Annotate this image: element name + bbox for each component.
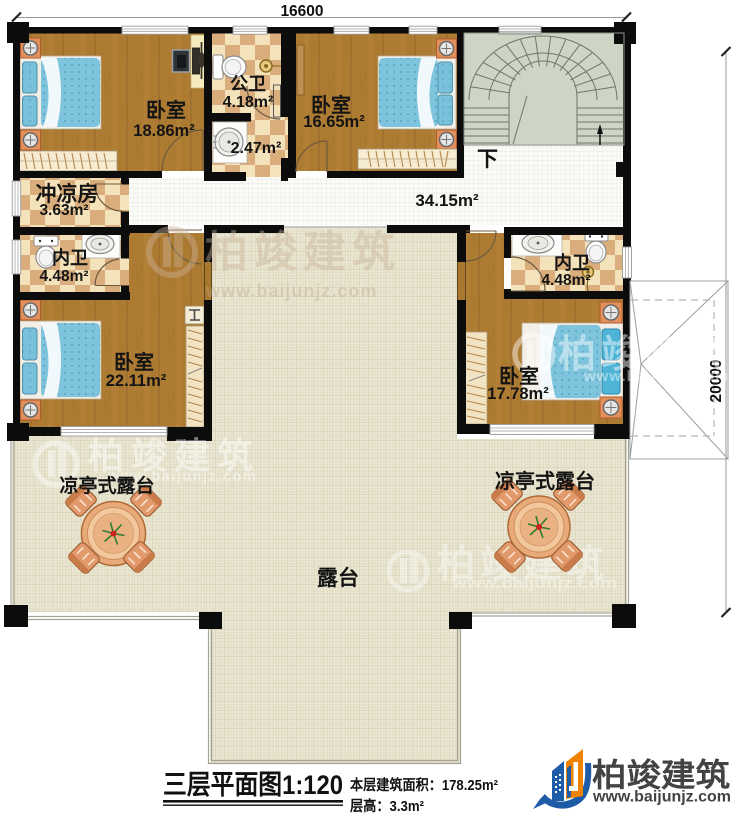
svg-text:34.15m²: 34.15m² <box>415 191 479 210</box>
svg-text:16600: 16600 <box>280 3 323 20</box>
svg-text:内卫: 内卫 <box>554 252 590 273</box>
svg-text:16.65m²: 16.65m² <box>303 113 365 131</box>
svg-text:本层建筑面积：178.25m²: 本层建筑面积：178.25m² <box>350 776 498 794</box>
svg-text:2.47m²: 2.47m² <box>231 140 282 157</box>
svg-text:卧室: 卧室 <box>114 350 154 374</box>
svg-text:凉亭式露台: 凉亭式露台 <box>59 474 154 497</box>
svg-text:17.78m²: 17.78m² <box>487 385 549 403</box>
svg-text:www.baijunjz.com: www.baijunjz.com <box>583 368 729 385</box>
svg-text:18.86m²: 18.86m² <box>133 122 195 140</box>
svg-text:22.11m²: 22.11m² <box>106 372 167 390</box>
svg-text:三层平面图1:120: 三层平面图1:120 <box>163 770 343 800</box>
svg-text:4.48m²: 4.48m² <box>541 272 590 289</box>
svg-text:卧室: 卧室 <box>146 98 186 122</box>
svg-text:www.baijunjz.com: www.baijunjz.com <box>205 281 377 301</box>
svg-text:内卫: 内卫 <box>52 247 88 268</box>
svg-text:凉亭式露台: 凉亭式露台 <box>495 469 595 493</box>
svg-text:3.63m²: 3.63m² <box>39 202 88 219</box>
svg-text:下: 下 <box>477 148 498 171</box>
svg-text:4.48m²: 4.48m² <box>39 268 88 285</box>
svg-text:公卫: 公卫 <box>230 74 266 94</box>
svg-text:www.baijunjz.com: www.baijunjz.com <box>451 575 617 592</box>
svg-text:4.18m²: 4.18m² <box>223 94 274 111</box>
svg-text:露台: 露台 <box>317 566 359 590</box>
svg-text:层高：3.3m²: 层高：3.3m² <box>350 797 424 815</box>
svg-text:柏竣建筑: 柏竣建筑 <box>205 229 401 277</box>
svg-text:www.baijunjz.com: www.baijunjz.com <box>592 789 731 806</box>
